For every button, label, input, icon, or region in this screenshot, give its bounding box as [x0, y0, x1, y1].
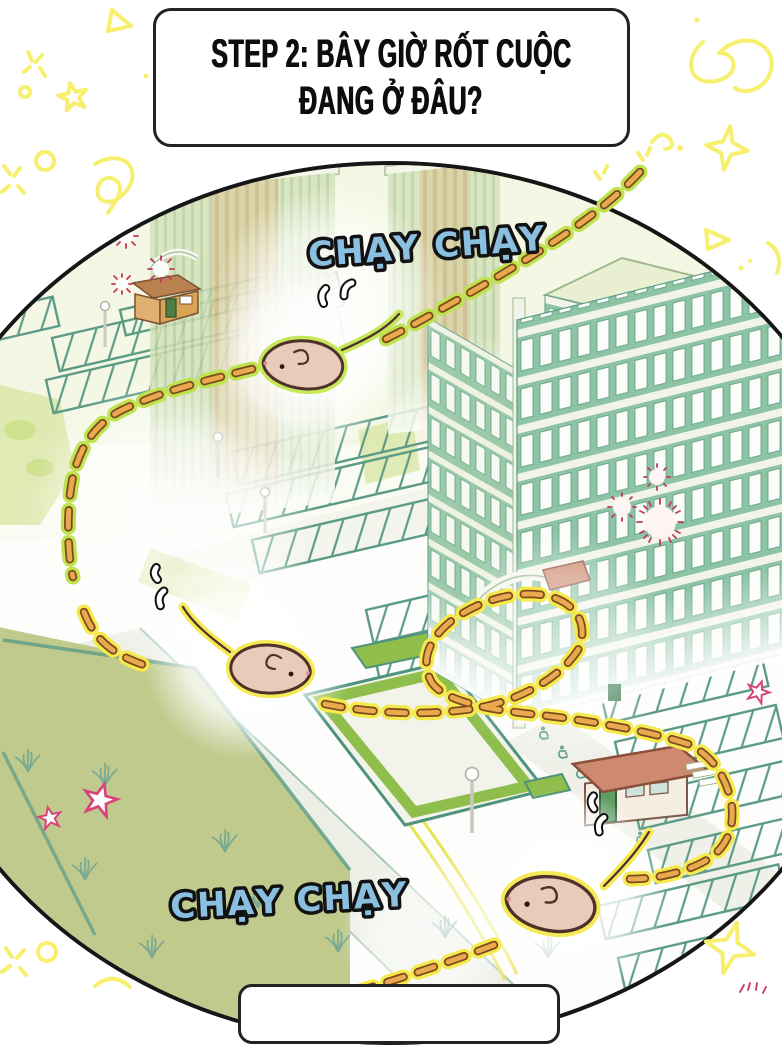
sparkle-icon	[24, 52, 45, 76]
dot-doodle-icon	[748, 259, 752, 263]
step-title-line2: ĐANG Ở ĐÂU?	[300, 78, 484, 125]
step-title-box: STEP 2: BÂY GIỜ RỐT CUỘC ĐANG Ở ĐÂU?	[153, 8, 630, 147]
curve-doodle-icon	[95, 979, 130, 987]
red-spark-burst	[148, 256, 174, 282]
scene-vignette-circle	[0, 161, 782, 1045]
circle-doodle-icon	[38, 943, 56, 961]
sparkle-icon	[638, 148, 650, 160]
red-spark-burst	[114, 224, 138, 248]
squiggle-doodle-icon	[652, 135, 672, 149]
red-sparkle-icon	[740, 983, 766, 993]
next-panel-box	[238, 984, 560, 1044]
triangle-doodle-icon	[706, 230, 729, 249]
dot-doodle-icon	[739, 266, 744, 271]
dot-doodle-icon	[144, 74, 149, 79]
campus-scene	[0, 165, 782, 1041]
dot-doodle-icon	[20, 87, 30, 97]
four-point-star-icon	[703, 123, 751, 172]
dot-doodle-icon	[695, 18, 700, 23]
circle-doodle-icon	[36, 152, 54, 170]
squiggle-doodle-icon	[95, 158, 133, 213]
red-spark-burst	[112, 274, 132, 294]
triangle-doodle-icon	[108, 10, 131, 31]
sparkle-icon	[2, 166, 24, 193]
dot-doodle-icon	[677, 145, 683, 151]
curve-doodle-icon	[768, 243, 779, 273]
sparkle-icon	[2, 948, 26, 975]
squiggle-doodle-icon	[691, 40, 772, 91]
step-title-line1: STEP 2: BÂY GIỜ RỐT CUỘC	[211, 31, 571, 78]
sparkle-icon	[595, 166, 607, 179]
star-doodle-icon	[56, 80, 89, 111]
comic-page: { "title_box": { "line1": "STEP 2: BÂY G…	[0, 0, 782, 1000]
